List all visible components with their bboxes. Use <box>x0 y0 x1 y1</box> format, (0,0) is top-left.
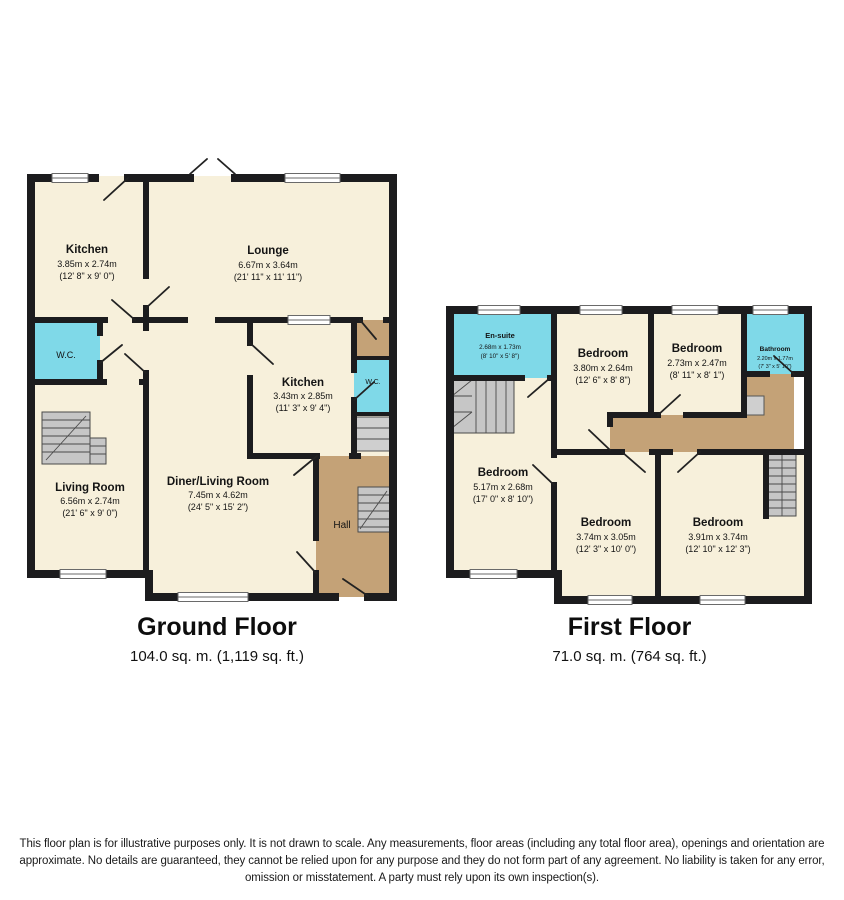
living-dims-m: 6.56m x 2.74m <box>60 496 120 506</box>
diner-dims-ft: (24' 5" x 15' 2") <box>188 502 248 512</box>
ensuite-name: En-suite <box>485 331 515 340</box>
lounge-dims-m: 6.67m x 3.64m <box>238 260 298 270</box>
bedroom1-dims-m: 3.80m x 2.64m <box>573 363 633 373</box>
living-dims-ft: (21' 6" x 9' 0") <box>62 508 117 518</box>
room-diner-upper <box>146 320 250 456</box>
kitchen2-dims-m: 3.43m x 2.85m <box>273 391 333 401</box>
bedroom5-name: Bedroom <box>693 517 743 529</box>
bedroom3-dims-ft: (17' 0" x 8' 10") <box>473 494 533 504</box>
disclaimer-line1: This floor plan is for illustrative purp… <box>0 836 844 853</box>
living-name: Living Room <box>55 482 125 494</box>
ground-floor-plan: Kitchen 3.85m x 2.74m (12' 8" x 9' 0") L… <box>22 154 402 603</box>
ensuite-dims-ft: (8' 10" x 5' 8") <box>481 353 520 360</box>
kitchen1-name: Kitchen <box>66 244 108 256</box>
window-icon <box>470 570 517 579</box>
diner-name: Diner/Living Room <box>167 476 269 488</box>
disclaimer-line3: omission or misstatement. A party must r… <box>0 870 844 887</box>
bathroom-dims-m: 2.20m x 1.77m <box>757 356 793 362</box>
window-icon <box>178 593 248 602</box>
kitchen1-dims-m: 3.85m x 2.74m <box>57 259 117 269</box>
window-icon <box>700 596 745 605</box>
kitchen2-name: Kitchen <box>282 377 324 389</box>
bedroom1-name: Bedroom <box>578 348 628 360</box>
window-icon <box>285 174 340 183</box>
appliance-icon <box>356 417 390 451</box>
kitchen2-dims-ft: (11' 3" x 9' 4") <box>276 403 331 413</box>
room-passage <box>100 320 146 382</box>
ground-floor-area: 104.0 sq. m. (1,119 sq. ft.) <box>22 648 412 665</box>
window-icon <box>478 306 520 315</box>
window-icon <box>288 316 330 325</box>
room-landing <box>610 415 794 452</box>
ground-floor-title: Ground Floor <box>22 613 412 642</box>
bedroom2-name: Bedroom <box>672 343 722 355</box>
room-living <box>30 382 146 574</box>
room-wc2 <box>354 358 394 414</box>
diner-dims-m: 7.45m x 4.62m <box>188 490 248 500</box>
bedroom5-dims-ft: (12' 10" x 12' 3") <box>685 544 750 554</box>
first-floor-area: 71.0 sq. m. (764 sq. ft.) <box>442 648 817 665</box>
bedroom3-dims-m: 5.17m x 2.68m <box>473 482 533 492</box>
main-stairs-icon <box>452 380 514 433</box>
kitchen1-dims-ft: (12' 8" x 9' 0") <box>59 271 114 281</box>
window-icon <box>52 174 88 183</box>
first-floor-plan: En-suite 2.68m x 1.73m (8' 10" x 5' 8") … <box>442 300 817 612</box>
landing-cupboard-icon <box>745 396 764 415</box>
lounge-dims-ft: (21' 11" x 11' 11") <box>234 272 302 282</box>
ground-floor-rooms <box>30 176 394 597</box>
disclaimer-line2: approximate. No details are guaranteed, … <box>0 853 844 870</box>
wc2-name: W.C. <box>365 379 380 386</box>
window-icon <box>753 306 788 315</box>
bedroom2-dims-m: 2.73m x 2.47m <box>667 358 727 368</box>
window-icon <box>60 570 106 579</box>
bedroom5-dims-m: 3.91m x 3.74m <box>688 532 748 542</box>
bedroom4-name: Bedroom <box>581 517 631 529</box>
bathroom-name: Bathroom <box>760 346 791 353</box>
bedroom4-dims-ft: (12' 3" x 10' 0") <box>576 544 636 554</box>
first-floor-title: First Floor <box>442 613 817 642</box>
disclaimer: This floor plan is for illustrative purp… <box>0 836 844 887</box>
bathroom-dims-ft: (7' 3" x 5' 10") <box>758 364 791 370</box>
window-icon <box>672 306 718 315</box>
window-icon <box>588 596 632 605</box>
bedroom2-dims-ft: (8' 11" x 8' 1") <box>670 370 725 380</box>
wc1-name: W.C. <box>56 350 76 360</box>
floorplan-page: Kitchen 3.85m x 2.74m (12' 8" x 9' 0") L… <box>0 0 844 900</box>
hall-name: Hall <box>333 520 350 531</box>
bedroom4-dims-m: 3.74m x 3.05m <box>576 532 636 542</box>
living-stairs-nub-icon <box>90 438 106 464</box>
ensuite-dims-m: 2.68m x 1.73m <box>479 344 521 351</box>
bedroom3-name: Bedroom <box>478 467 528 479</box>
lounge-name: Lounge <box>247 245 289 257</box>
window-icon <box>580 306 622 315</box>
bedroom1-dims-ft: (12' 6" x 8' 8") <box>575 375 630 385</box>
room-hall-entry <box>354 320 394 358</box>
room-ensuite <box>450 308 554 378</box>
